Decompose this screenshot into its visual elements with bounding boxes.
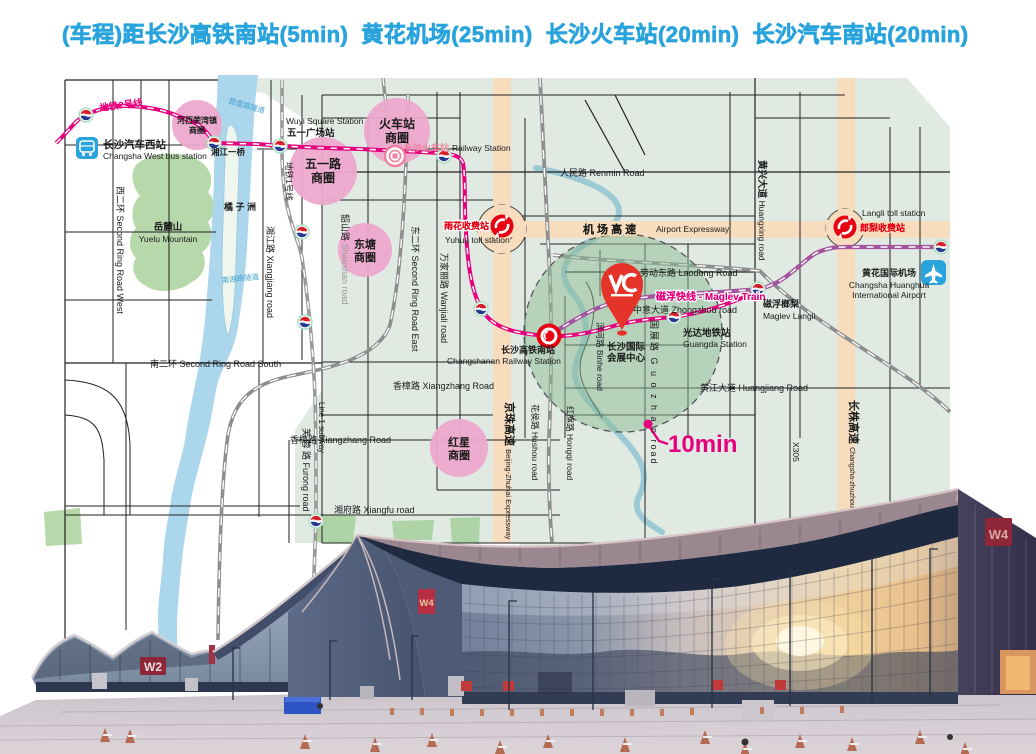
svg-text:商圈: 商圈 bbox=[189, 125, 205, 135]
svg-text:Guangda Station: Guangda Station bbox=[683, 339, 747, 349]
svg-text:Changshanan Railway Station: Changshanan Railway Station bbox=[447, 356, 561, 366]
svg-text:黄兴大道 Huangxing road: 黄兴大道 Huangxing road bbox=[756, 160, 768, 261]
svg-text:芙 蓉 路 Furong road: 芙 蓉 路 Furong road bbox=[301, 428, 312, 512]
svg-text:Yuelu Mountain: Yuelu Mountain bbox=[139, 234, 198, 244]
svg-text:岳麓山: 岳麓山 bbox=[154, 221, 183, 233]
svg-text:商圈: 商圈 bbox=[354, 250, 376, 264]
svg-text:长沙火车站: 长沙火车站 bbox=[404, 142, 449, 153]
svg-text:香樟路 Xiangzhang Road: 香樟路 Xiangzhang Road bbox=[393, 380, 494, 391]
svg-text:花侯路 Hushou road: 花侯路 Hushou road bbox=[530, 404, 540, 481]
svg-text:湘江路 Xiangjiang road: 湘江路 Xiangjiang road bbox=[265, 226, 276, 318]
svg-text:南二环 Second Ring Road South: 南二环 Second Ring Road South bbox=[150, 358, 281, 369]
svg-text:Airport Expressway: Airport Expressway bbox=[656, 224, 730, 234]
svg-text:Line 1 subway: Line 1 subway bbox=[317, 402, 326, 453]
svg-text:W4: W4 bbox=[419, 598, 434, 609]
svg-text:红旗路 Hongqi road: 红旗路 Hongqi road bbox=[565, 406, 575, 480]
svg-text:西二环 Second Ring Road West: 西二环 Second Ring Road West bbox=[115, 186, 125, 314]
svg-text:长沙高铁南站: 长沙高铁南站 bbox=[501, 344, 555, 355]
svg-text:人民路 Renmin Road: 人民路 Renmin Road bbox=[560, 167, 645, 178]
svg-text:黄江大道 Huangjiang Road: 黄江大道 Huangjiang Road bbox=[700, 382, 808, 393]
svg-text:韶山路 Shaoshan road: 韶山路 Shaoshan road bbox=[340, 214, 351, 305]
svg-text:橘 子 洲: 橘 子 洲 bbox=[223, 201, 256, 212]
svg-text:红星: 红星 bbox=[448, 435, 470, 449]
svg-text:湘府路 Xiangfu road: 湘府路 Xiangfu road bbox=[334, 504, 415, 515]
svg-text:Yuhua toll station: Yuhua toll station bbox=[445, 235, 510, 245]
svg-text:商圈: 商圈 bbox=[311, 170, 335, 185]
svg-text:火车站: 火车站 bbox=[379, 116, 415, 131]
svg-text:东塘: 东塘 bbox=[354, 237, 376, 251]
svg-text:光达地铁站: 光达地铁站 bbox=[682, 327, 731, 339]
svg-text:湘江一桥: 湘江一桥 bbox=[211, 147, 246, 157]
svg-text:东二环 Second Ring Road East: 东二环 Second Ring Road East bbox=[410, 226, 421, 352]
svg-text:滨河路 Binhe road: 滨河路 Binhe road bbox=[595, 322, 605, 391]
svg-text:Changsha West bus station: Changsha West bus station bbox=[103, 151, 207, 161]
svg-text:X305: X305 bbox=[791, 442, 801, 462]
svg-text:雨花收费站: 雨花收费站 bbox=[444, 220, 489, 231]
svg-text:河西荣湾镇: 河西荣湾镇 bbox=[177, 115, 217, 125]
svg-text:地铁1号线: 地铁1号线 bbox=[284, 162, 294, 201]
svg-text:会展中心: 会展中心 bbox=[607, 352, 646, 364]
svg-text:长沙汽车西站: 长沙汽车西站 bbox=[103, 138, 166, 151]
svg-text:Changsha Huanghua: Changsha Huanghua bbox=[849, 280, 930, 290]
svg-text:国展路 G u o z h a n road: 国展路 G u o z h a n road bbox=[649, 320, 660, 466]
svg-text:Railway Station: Railway Station bbox=[452, 143, 511, 153]
svg-text:W4: W4 bbox=[989, 527, 1009, 542]
svg-text:Langli toll station: Langli toll station bbox=[862, 208, 926, 218]
svg-text:机 场 高 速: 机 场 高 速 bbox=[583, 222, 636, 236]
svg-text:五一路: 五一路 bbox=[305, 156, 342, 171]
svg-text:W2: W2 bbox=[144, 660, 162, 674]
svg-text:郎梨收费站: 郎梨收费站 bbox=[860, 222, 905, 233]
svg-text:Maglev Langli: Maglev Langli bbox=[763, 311, 816, 321]
svg-text:10min: 10min bbox=[668, 431, 737, 458]
svg-text:万家丽路 Wanjiali road: 万家丽路 Wanjiali road bbox=[439, 253, 450, 343]
svg-text:长沙国际: 长沙国际 bbox=[607, 341, 646, 353]
svg-text:International Airport: International Airport bbox=[852, 290, 926, 300]
svg-text:磁浮榔梨: 磁浮榔梨 bbox=[763, 298, 800, 309]
svg-text:地铁2号线: 地铁2号线 bbox=[99, 97, 144, 114]
svg-text:商圈: 商圈 bbox=[448, 448, 470, 462]
svg-text:Wuyi Square Station: Wuyi Square Station bbox=[286, 116, 364, 126]
svg-text:磁浮快线 - Maglev Train: 磁浮快线 - Maglev Train bbox=[656, 290, 765, 303]
svg-text:五一广场站: 五一广场站 bbox=[287, 127, 335, 139]
svg-text:劳动东路 Laodong Road: 劳动东路 Laodong Road bbox=[640, 267, 738, 278]
svg-text:中意大道 Zhongzhou road: 中意大道 Zhongzhou road bbox=[633, 304, 737, 315]
svg-text:黄花国际机场: 黄花国际机场 bbox=[862, 267, 916, 278]
